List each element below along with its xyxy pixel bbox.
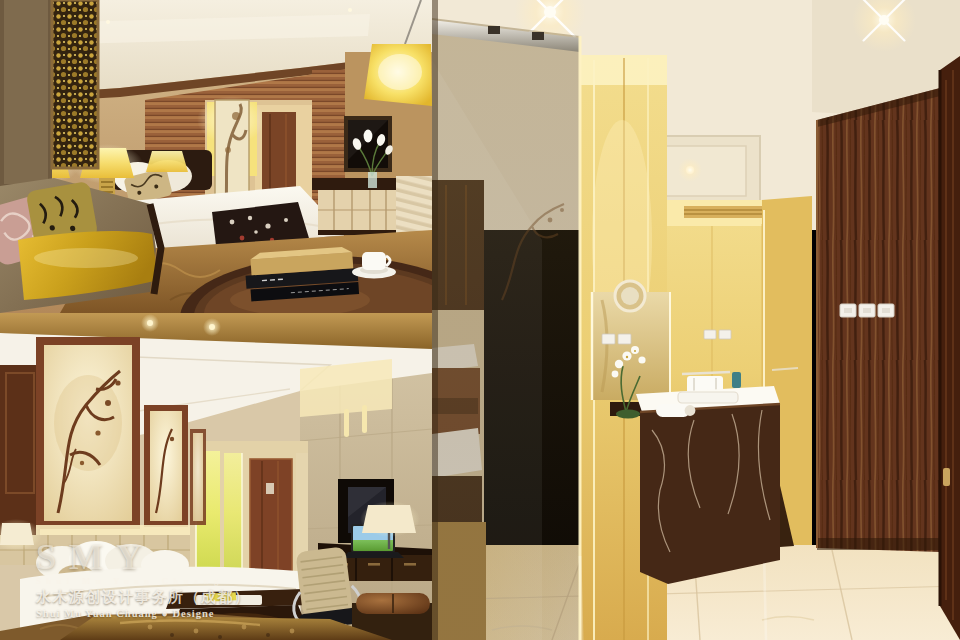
gold-filigree-screen [0, 0, 98, 188]
design-portfolio-collage: SMY Shui Mu Yuan Chuang 水木源创设计事务所（成都） Sh… [0, 0, 960, 640]
sliding-glass-door [432, 0, 582, 640]
branch-artwork-large [36, 337, 140, 529]
walnut-wall [817, 88, 940, 552]
corridor-door [250, 459, 292, 577]
door-handle[interactable] [943, 468, 950, 486]
light-switch-plates[interactable] [840, 304, 894, 317]
photo-bedroom-desk [0, 313, 432, 640]
basin [678, 392, 738, 403]
toiletry-bottle [732, 372, 741, 388]
art-cove-light [36, 525, 190, 535]
entry-door [940, 56, 960, 640]
photo-bedroom-lounge [0, 0, 432, 313]
book-stack [244, 246, 359, 302]
photo-bathroom-corridor [432, 0, 960, 640]
yellow-book [206, 592, 236, 602]
